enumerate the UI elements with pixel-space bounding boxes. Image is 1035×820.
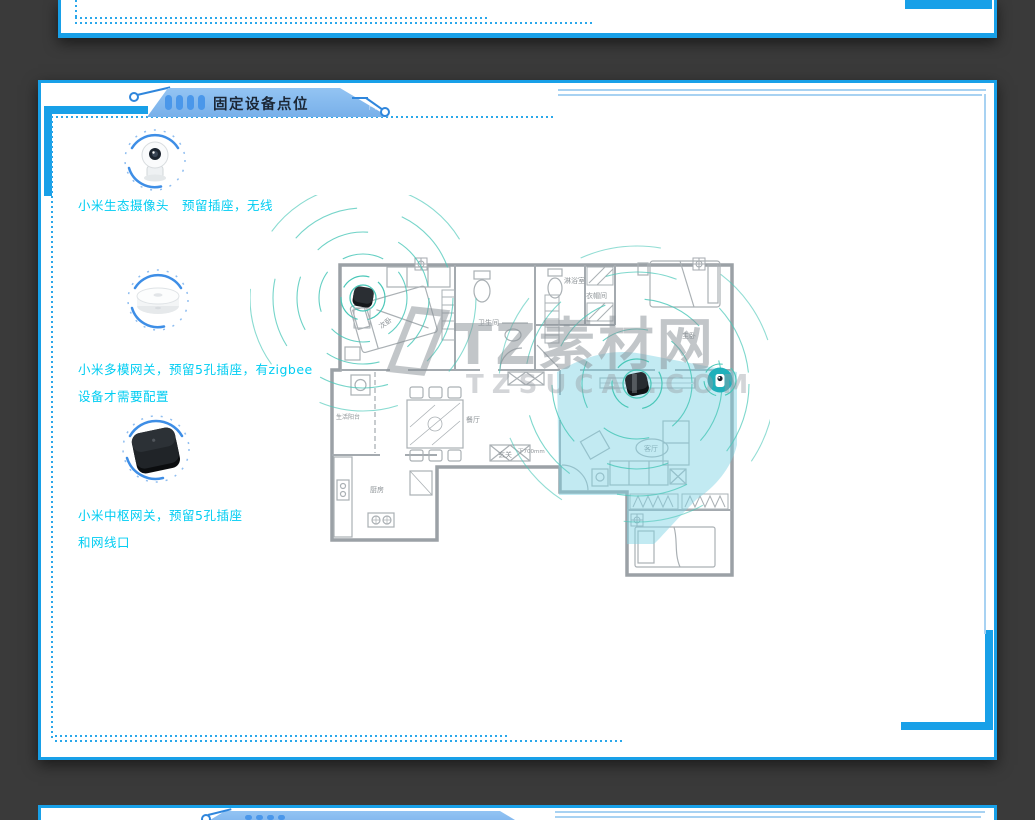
device-label: 小米生态摄像头 预留插座，无线 bbox=[78, 195, 273, 214]
watermark-url: TZSUCAI.COM bbox=[466, 370, 756, 400]
top-panel-corner-bracket bbox=[905, 0, 992, 9]
main-bracket-bottomright bbox=[985, 630, 993, 730]
camera-device-icon bbox=[123, 128, 187, 192]
room-label: 淋浴室 bbox=[564, 276, 585, 285]
watermark: TZ素材网 bbox=[398, 300, 716, 381]
room-label: 餐厅 bbox=[466, 415, 480, 424]
watermark-title: TZ素材网 bbox=[454, 300, 716, 381]
tab-bar-decoration bbox=[187, 95, 194, 110]
top-panel bbox=[58, 0, 997, 38]
room-label: 衣帽间 bbox=[586, 291, 607, 300]
thin-line-decoration bbox=[984, 94, 986, 634]
room-label: 玄关 bbox=[498, 450, 512, 459]
tab-bar-decoration bbox=[267, 815, 274, 820]
section-title: 固定设备点位 bbox=[213, 93, 309, 114]
multimode-gateway-icon bbox=[126, 268, 190, 332]
main-dotted-border-left bbox=[51, 116, 53, 741]
poster-page: 固定设备点位 小米生态摄像头 bbox=[0, 0, 1035, 820]
tab-bar-decoration bbox=[245, 815, 252, 820]
main-bracket-topleft bbox=[44, 106, 148, 114]
top-panel-dotted-line bbox=[75, 17, 487, 19]
main-bracket-bottomright bbox=[901, 722, 993, 730]
plan-annotation: 下700mm bbox=[518, 448, 545, 455]
main-dotted-border-bottom bbox=[55, 740, 625, 742]
tab-bar-decoration bbox=[165, 95, 172, 110]
plan-device-gateway bbox=[352, 285, 375, 308]
tab-bar-decoration bbox=[256, 815, 263, 820]
main-dotted-border-bottom bbox=[55, 735, 510, 737]
room-label: 生活阳台 bbox=[336, 413, 360, 421]
device-label: 小米中枢网关，预留5孔插座 bbox=[78, 505, 242, 524]
top-panel-dotted-line bbox=[75, 22, 595, 24]
thin-line-decoration bbox=[558, 89, 986, 91]
tab-bar-decoration bbox=[278, 815, 285, 820]
thin-line-decoration bbox=[555, 811, 985, 813]
device-label: 设备才需要配置 bbox=[78, 386, 169, 405]
hub-gateway-icon bbox=[120, 413, 192, 485]
bottom-section-tab bbox=[210, 811, 515, 820]
top-panel-dotted-line bbox=[75, 0, 77, 17]
tab-bar-decoration bbox=[176, 95, 183, 110]
thin-line-decoration bbox=[555, 816, 981, 818]
device-label: 和网线口 bbox=[78, 532, 130, 551]
room-label: 厨房 bbox=[370, 485, 384, 494]
thin-line-decoration bbox=[558, 94, 982, 96]
tab-connector-node-right bbox=[380, 107, 390, 117]
tab-bar-decoration bbox=[198, 95, 205, 110]
